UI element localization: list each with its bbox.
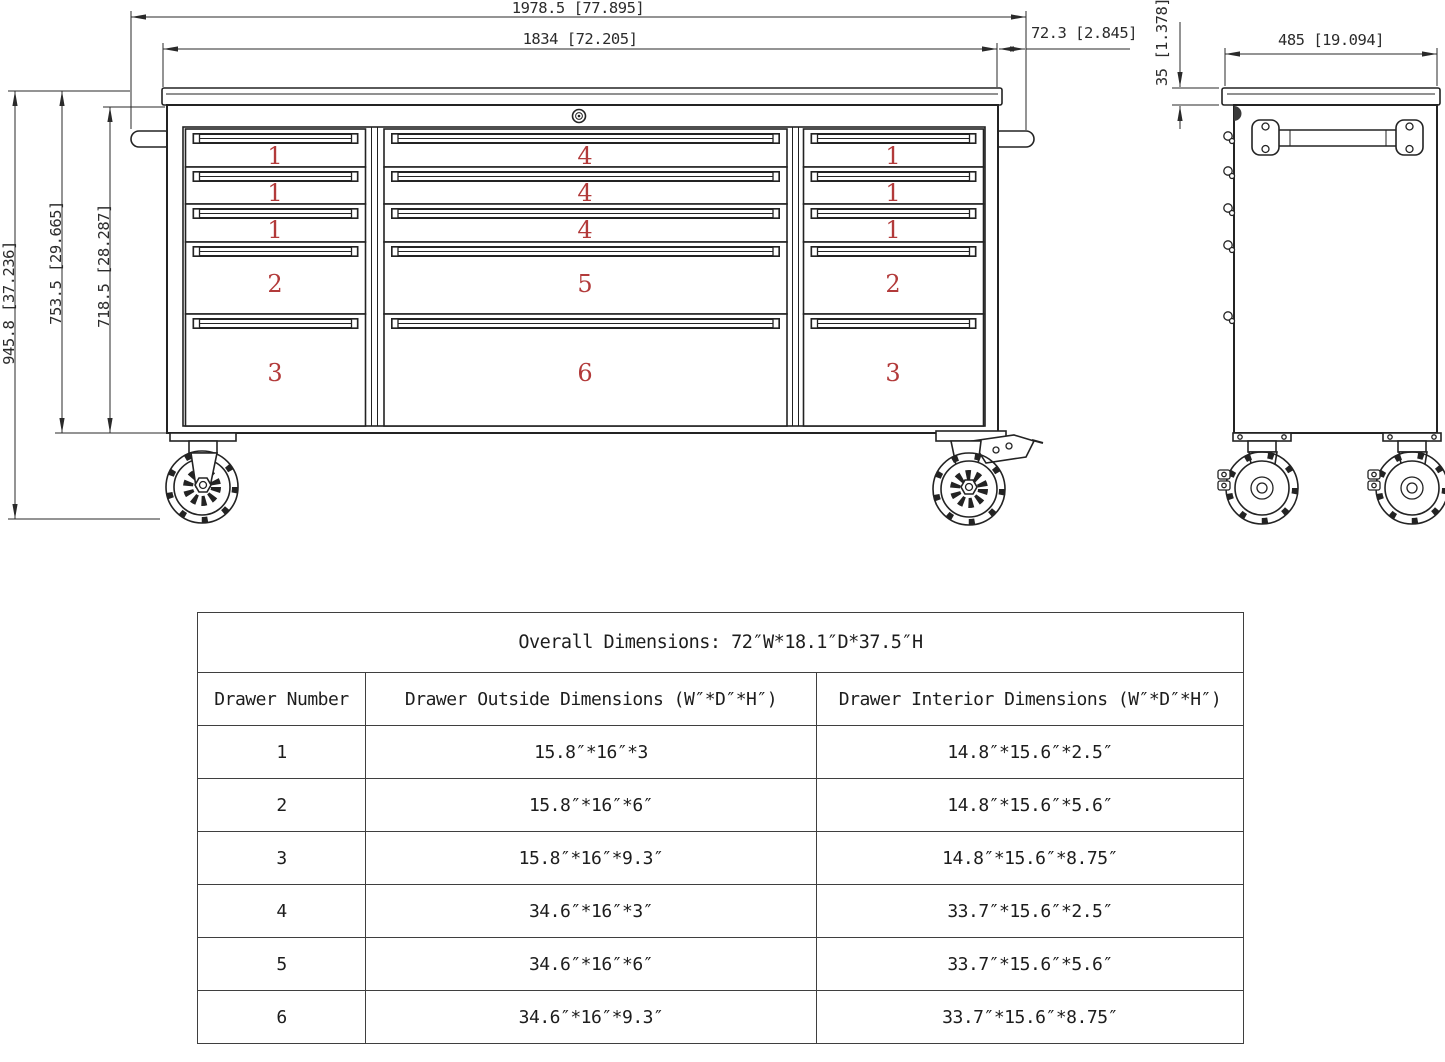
- drawer-number-label: 2: [885, 270, 900, 298]
- drawer-number-label: 3: [885, 359, 900, 387]
- drawer-number-label: 2: [267, 270, 282, 298]
- table-row: 1 15.8″*16″*3 14.8″*15.6″*2.5″: [198, 726, 1244, 779]
- cell-drawer-number: 6: [198, 991, 366, 1044]
- cell-outside-dims: 15.8″*16″*6″: [366, 779, 817, 832]
- cell-outside-dims: 34.6″*16″*6″: [366, 938, 817, 991]
- col-header-drawer-number: Drawer Number: [198, 673, 366, 726]
- drawer-number-label: 4: [577, 142, 592, 170]
- table-row: 4 34.6″*16″*3″ 33.7″*15.6″*2.5″: [198, 885, 1244, 938]
- drawer-dimensions-table: Overall Dimensions: 72″W*18.1″D*37.5″H D…: [197, 612, 1244, 1044]
- table-title-row: Overall Dimensions: 72″W*18.1″D*37.5″H: [198, 613, 1244, 673]
- dim-top-thickness: 35 [1.378]: [1153, 0, 1171, 86]
- table-row: 6 34.6″*16″*9.3″ 33.7″*15.6″*8.75″: [198, 991, 1244, 1044]
- table-title: Overall Dimensions: 72″W*18.1″D*37.5″H: [198, 613, 1244, 673]
- drawer-number-label: 1: [267, 142, 282, 170]
- caster-side-rear-icon: [1368, 433, 1445, 524]
- technical-drawing-sheet: 1978.5 [77.895] 1834 [72.205] 72.3 [2.84…: [0, 0, 1445, 1062]
- caster-front-left-icon: [166, 433, 238, 523]
- caster-side-front-icon: [1218, 433, 1298, 524]
- cell-interior-dims: 14.8″*15.6″*2.5″: [817, 726, 1244, 779]
- dim-body-height: 753.5 [29.665]: [47, 201, 65, 325]
- dim-overall-width: 1978.5 [77.895]: [512, 0, 644, 17]
- drawer-number-label: 4: [577, 179, 592, 207]
- side-view: [1218, 88, 1445, 524]
- front-worktop: [162, 88, 1002, 105]
- cabinet-line-drawing: [0, 0, 1445, 580]
- dim-top-width: 1834 [72.205]: [523, 30, 638, 48]
- side-worktop: [1222, 88, 1440, 105]
- table-row: 5 34.6″*16″*6″ 33.7″*15.6″*5.6″: [198, 938, 1244, 991]
- cell-drawer-number: 5: [198, 938, 366, 991]
- drawer-number-label: 1: [267, 216, 282, 244]
- drawer-number-label: 1: [267, 179, 282, 207]
- cell-interior-dims: 33.7″*15.6″*5.6″: [817, 938, 1244, 991]
- col-header-outside-dims: Drawer Outside Dimensions (W″*D″*H″): [366, 673, 817, 726]
- drawer-number-label: 1: [885, 142, 900, 170]
- side-slide-clips: [1224, 132, 1235, 324]
- drawer-number-label: 6: [577, 359, 592, 387]
- dim-drawer-area-height: 718.5 [28.287]: [95, 204, 113, 328]
- cell-outside-dims: 34.6″*16″*9.3″: [366, 991, 817, 1044]
- cell-interior-dims: 14.8″*15.6″*8.75″: [817, 832, 1244, 885]
- dim-side-depth: 485 [19.094]: [1278, 31, 1384, 49]
- drawer-number-label: 1: [885, 216, 900, 244]
- table-row: 3 15.8″*16″*9.3″ 14.8″*15.6″*8.75″: [198, 832, 1244, 885]
- cell-interior-dims: 14.8″*15.6″*5.6″: [817, 779, 1244, 832]
- drawer-number-label: 3: [267, 359, 282, 387]
- drawer-number-label: 1: [885, 179, 900, 207]
- cell-outside-dims: 34.6″*16″*3″: [366, 885, 817, 938]
- cell-drawer-number: 3: [198, 832, 366, 885]
- cell-interior-dims: 33.7″*15.6″*2.5″: [817, 885, 1244, 938]
- col-header-interior-dims: Drawer Interior Dimensions (W″*D″*H″): [817, 673, 1244, 726]
- caster-front-right-brake-icon: [933, 431, 1043, 525]
- cell-outside-dims: 15.8″*16″*3: [366, 726, 817, 779]
- cell-interior-dims: 33.7″*15.6″*8.75″: [817, 991, 1244, 1044]
- cell-drawer-number: 2: [198, 779, 366, 832]
- drawer-number-label: 5: [577, 270, 592, 298]
- dim-overall-height: 945.8 [37.236]: [0, 241, 18, 365]
- table-row: 2 15.8″*16″*6″ 14.8″*15.6″*5.6″: [198, 779, 1244, 832]
- cell-drawer-number: 4: [198, 885, 366, 938]
- dim-top-overhang: 72.3 [2.845]: [1031, 24, 1137, 42]
- cell-outside-dims: 15.8″*16″*9.3″: [366, 832, 817, 885]
- drawer-number-label: 4: [577, 216, 592, 244]
- cell-drawer-number: 1: [198, 726, 366, 779]
- table-header-row: Drawer Number Drawer Outside Dimensions …: [198, 673, 1244, 726]
